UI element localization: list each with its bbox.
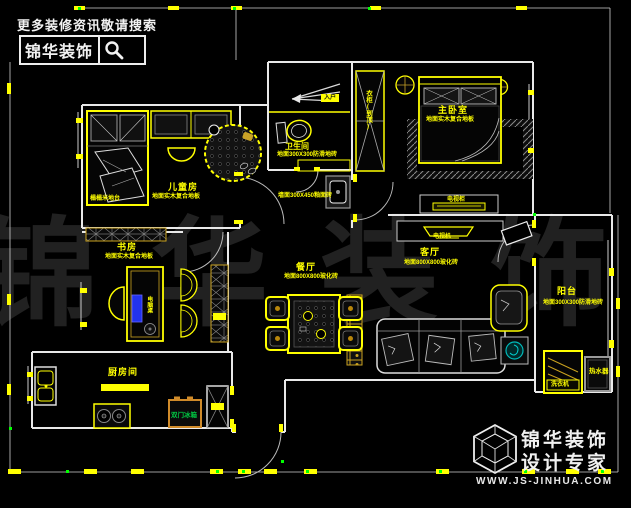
round-rug-symbol	[205, 125, 261, 181]
armchair-symbol	[491, 285, 527, 331]
cube-logo-icon	[470, 423, 520, 480]
shoe-cabinet-symbol	[207, 386, 228, 428]
balcony-label: 阳台	[557, 287, 577, 296]
tatami-note: 榻榻米地台	[90, 196, 120, 202]
brand-logo-text: 锦华装饰	[21, 38, 98, 62]
bathroom-label: 卫生间	[285, 143, 309, 151]
balcony-desc: 地面300X300防滑地砖	[543, 300, 603, 306]
dining-table-symbol	[288, 295, 340, 353]
kitchen-label: 厨房间	[108, 368, 138, 377]
children-chair-symbol	[168, 148, 195, 161]
washbasin-symbol	[298, 160, 350, 208]
kitchen-desc-bar	[101, 384, 149, 391]
master-room-desc: 地面实木复合地板	[426, 117, 474, 123]
washer-label: 洗衣机	[551, 382, 569, 388]
study-room-label: 书房	[117, 243, 137, 252]
master-room-label: 主卧室	[438, 106, 468, 115]
children-room-desc: 地面实木复合地板	[152, 194, 200, 200]
desk-chair-symbol	[109, 287, 124, 320]
bookshelf-symbol	[211, 265, 228, 342]
living-room-desc: 地面800X800玻化砖	[404, 260, 458, 266]
heater-label: 热水器	[589, 369, 609, 376]
footer-website: WWW.JS-JINHUA.COM	[476, 476, 613, 487]
fridge-label: 双门冰箱	[171, 409, 197, 419]
search-icon[interactable]	[100, 40, 128, 60]
bathroom-floor-note: 墙面300X450釉面砖	[278, 193, 332, 199]
toilet-symbol	[276, 119, 312, 143]
stove-symbol	[94, 404, 130, 428]
plant-table-symbol	[501, 337, 528, 364]
brand-search-box[interactable]: 锦华装饰	[19, 35, 146, 65]
study-cabinet-symbol	[86, 228, 166, 241]
brand-tagline: 更多装修资讯敬请搜索	[17, 15, 157, 34]
guest-chairs-symbol	[181, 269, 197, 337]
wardrobe-label: 衣柜(到顶)	[364, 90, 371, 156]
children-room-label: 儿童房	[168, 183, 198, 192]
dining-room-label: 餐厅	[296, 263, 316, 272]
dining-room-desc: 地面800X800玻化砖	[284, 274, 338, 280]
children-bed-symbol	[87, 111, 148, 205]
bathroom-desc: 地面300X300防滑地砖	[277, 152, 337, 158]
stool-symbol	[501, 222, 532, 245]
living-room-label: 客厅	[420, 248, 440, 257]
entry-label: 入户	[321, 94, 339, 102]
sofa-symbol	[377, 319, 505, 373]
footer-logo-line2: 设计专家	[521, 448, 609, 475]
tv-set-label: 电视机	[433, 234, 451, 240]
kitchen-sink-symbol	[35, 367, 56, 405]
floor-plan-canvas: 锦华装饰	[0, 0, 631, 508]
tv-cabinet-label: 电视柜	[447, 197, 465, 203]
study-room-desc: 地面实木复合地板	[105, 254, 153, 260]
desk-label: 电脑桌	[145, 296, 151, 324]
